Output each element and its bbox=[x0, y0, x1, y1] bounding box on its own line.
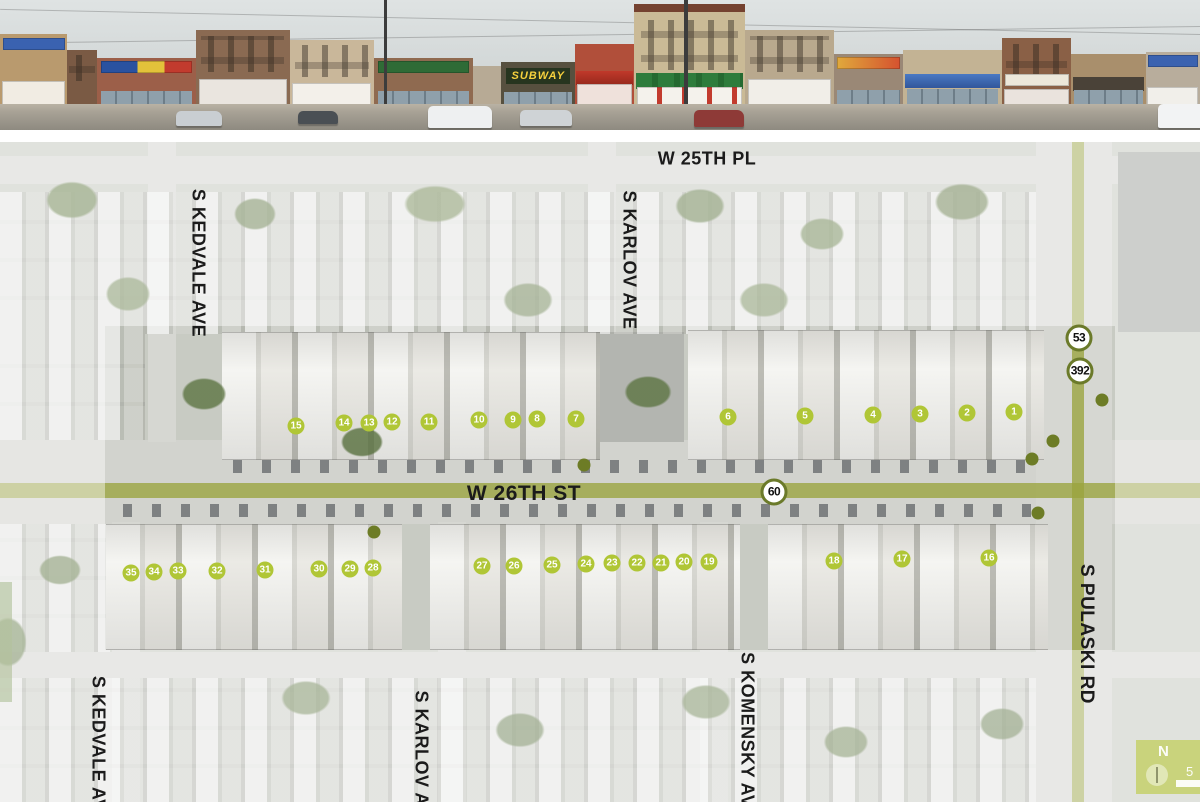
route-badge: 53 bbox=[1066, 325, 1093, 352]
utility-pole bbox=[384, 0, 387, 112]
aerial-map: W 25TH PLS KARLOV AVES KEDVALE AVEW 26TH… bbox=[0, 142, 1200, 802]
route-badge: 392 bbox=[1067, 358, 1094, 385]
storefront-building bbox=[290, 40, 374, 108]
building-marker: 21 bbox=[653, 555, 670, 572]
building-marker: 24 bbox=[578, 556, 595, 573]
building-row: SUBWAY bbox=[0, 4, 1200, 108]
vehicle bbox=[520, 110, 572, 126]
poi-dot bbox=[578, 459, 591, 472]
building-marker: 11 bbox=[421, 414, 438, 431]
building-marker: 9 bbox=[505, 412, 522, 429]
storefront-building bbox=[67, 50, 97, 108]
street-label: S KARLOV AVE bbox=[411, 690, 432, 802]
building-marker: 2 bbox=[959, 405, 976, 422]
vehicle bbox=[694, 110, 744, 127]
street-label: S KEDVALE AVE bbox=[88, 676, 109, 802]
building-marker: 29 bbox=[342, 561, 359, 578]
storefront-building bbox=[0, 34, 67, 108]
street-label: W 25TH PL bbox=[658, 149, 757, 170]
building-marker: 8 bbox=[529, 411, 546, 428]
building-marker: 23 bbox=[604, 555, 621, 572]
storefront-building bbox=[575, 44, 634, 108]
storefront-building bbox=[473, 66, 501, 108]
building-marker: 27 bbox=[474, 558, 491, 575]
page: SUBWAY bbox=[0, 0, 1200, 802]
building-marker: 18 bbox=[826, 553, 843, 570]
poi-dots-layer bbox=[0, 142, 1200, 802]
street-label: S KEDVALE AVE bbox=[188, 189, 209, 337]
building-marker: 22 bbox=[629, 555, 646, 572]
street-label: S PULASKI RD bbox=[1075, 564, 1097, 704]
building-marker: 30 bbox=[311, 561, 328, 578]
building-marker: 17 bbox=[894, 551, 911, 568]
building-marker: 35 bbox=[123, 565, 140, 582]
scale-number: 5 bbox=[1186, 764, 1193, 779]
storefront-building: SUBWAY bbox=[501, 62, 575, 108]
building-marker: 34 bbox=[146, 564, 163, 581]
storefront-building bbox=[1071, 54, 1145, 108]
vehicle bbox=[428, 106, 492, 128]
building-marker: 26 bbox=[506, 558, 523, 575]
north-arrow-block: N 5 bbox=[1136, 740, 1200, 794]
subway-sign: SUBWAY bbox=[506, 68, 569, 84]
building-marker: 31 bbox=[257, 562, 274, 579]
storefront-building bbox=[634, 4, 745, 108]
building-marker: 28 bbox=[365, 560, 382, 577]
building-marker: 32 bbox=[209, 563, 226, 580]
building-marker: 33 bbox=[170, 563, 187, 580]
building-marker: 12 bbox=[384, 414, 401, 431]
north-label: N bbox=[1158, 743, 1169, 760]
storefront-building bbox=[97, 58, 196, 108]
building-marker: 25 bbox=[544, 557, 561, 574]
storefront-panorama: SUBWAY bbox=[0, 0, 1200, 130]
street-label: W 26TH ST bbox=[467, 482, 581, 506]
poi-dot bbox=[1032, 507, 1045, 520]
storefront-building bbox=[903, 50, 1002, 108]
scale-bar bbox=[1176, 780, 1200, 787]
building-marker: 6 bbox=[720, 409, 737, 426]
street-label: S KOMENSKY AVE bbox=[737, 652, 758, 802]
storefront-building bbox=[745, 30, 834, 108]
building-marker: 5 bbox=[797, 408, 814, 425]
storefront-building bbox=[834, 54, 903, 108]
poi-dot bbox=[1026, 453, 1039, 466]
route-badge: 60 bbox=[761, 479, 788, 506]
building-marker: 19 bbox=[701, 554, 718, 571]
building-marker: 10 bbox=[471, 412, 488, 429]
vehicle bbox=[298, 111, 338, 124]
storefront-building bbox=[1002, 38, 1071, 108]
building-marker: 3 bbox=[912, 406, 929, 423]
vehicle bbox=[176, 111, 222, 126]
street-label: S KARLOV AVE bbox=[619, 190, 640, 329]
building-marker: 13 bbox=[361, 415, 378, 432]
vehicle bbox=[1158, 104, 1200, 128]
poi-dot bbox=[1096, 394, 1109, 407]
poi-dot bbox=[368, 526, 381, 539]
building-marker: 14 bbox=[336, 415, 353, 432]
compass-icon bbox=[1146, 764, 1168, 786]
storefront-building bbox=[1146, 52, 1200, 108]
building-marker: 20 bbox=[676, 554, 693, 571]
building-marker: 7 bbox=[568, 411, 585, 428]
building-marker: 15 bbox=[288, 418, 305, 435]
building-marker: 16 bbox=[981, 550, 998, 567]
poi-dot bbox=[1047, 435, 1060, 448]
building-marker: 1 bbox=[1006, 404, 1023, 421]
storefront-building bbox=[196, 30, 290, 108]
storefront-building bbox=[374, 58, 473, 108]
building-marker: 4 bbox=[865, 407, 882, 424]
